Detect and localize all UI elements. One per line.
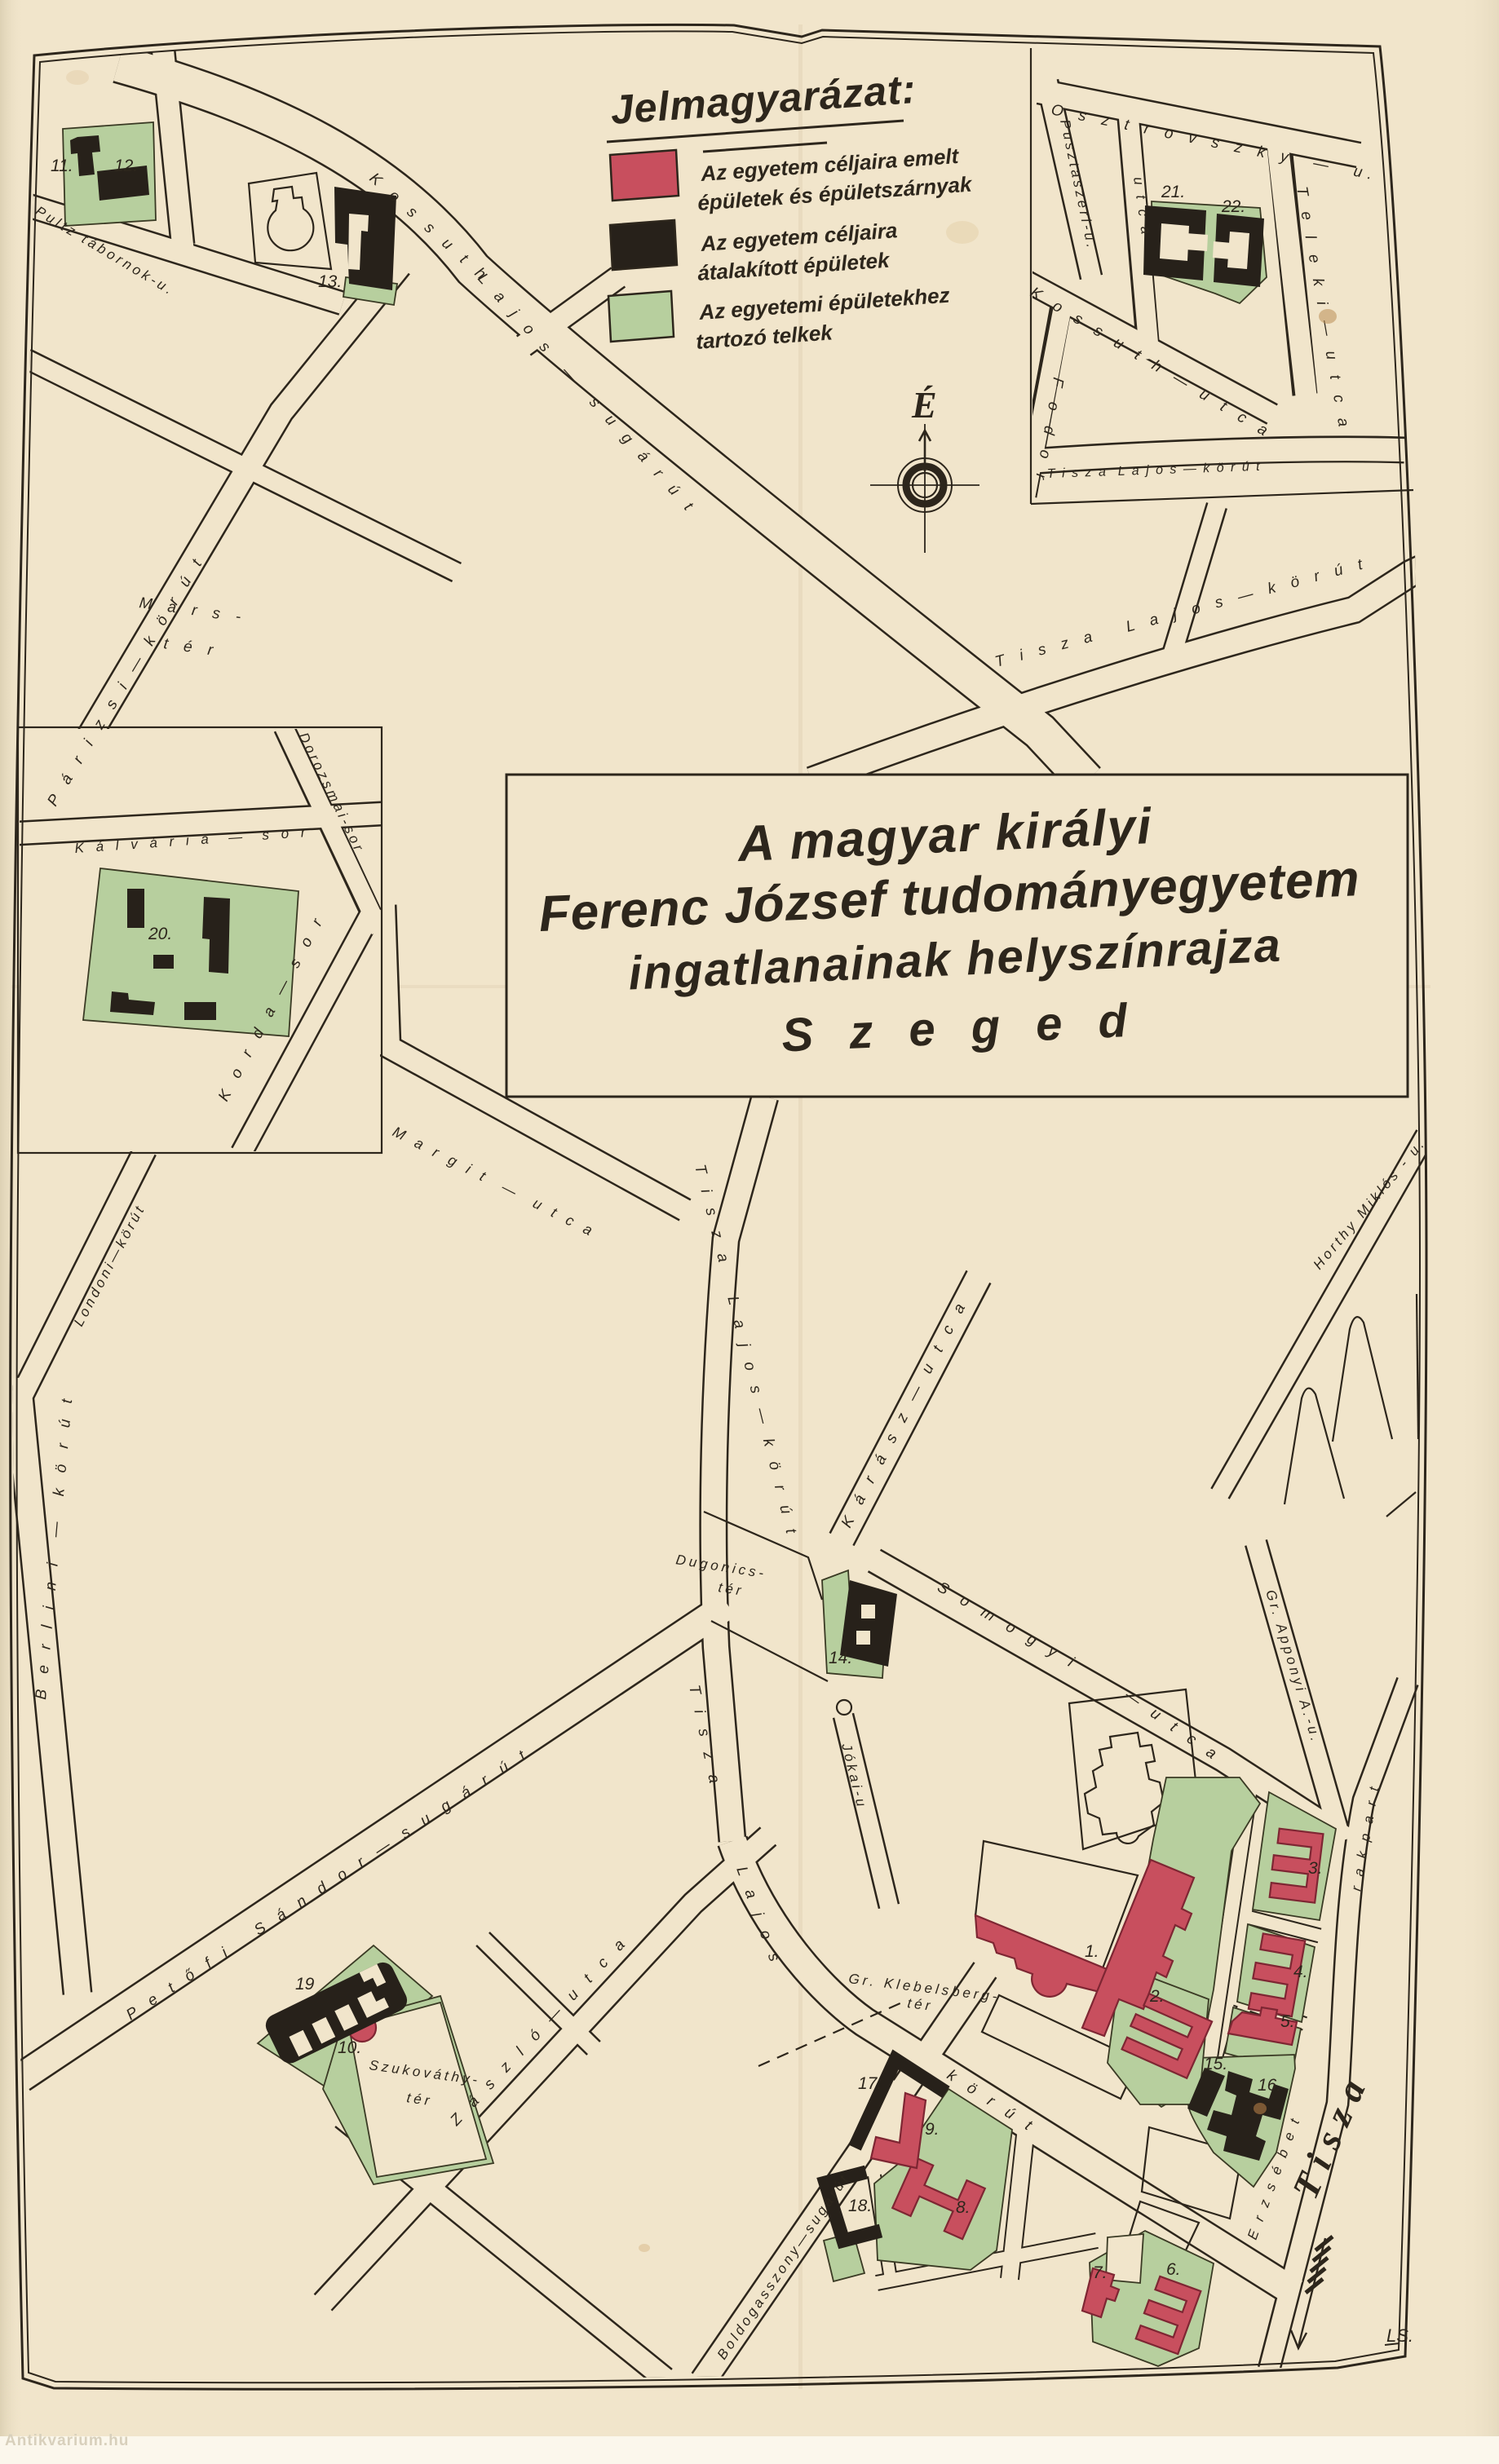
- svg-text:tér: tér: [907, 1995, 935, 2014]
- svg-text:22.: 22.: [1221, 197, 1245, 216]
- svg-text:5.: 5.: [1280, 2012, 1295, 2031]
- svg-text:21.: 21.: [1161, 183, 1185, 201]
- svg-text:16.: 16.: [1258, 2076, 1281, 2095]
- svg-text:3.: 3.: [1308, 1859, 1323, 1878]
- svg-text:20.: 20.: [148, 925, 172, 943]
- svg-text:18.: 18.: [848, 2197, 872, 2215]
- svg-text:15.: 15.: [1204, 2055, 1227, 2073]
- svg-text:12.: 12.: [114, 157, 138, 175]
- svg-text:10.: 10.: [338, 2038, 361, 2057]
- svg-text:8.: 8.: [956, 2198, 971, 2217]
- svg-text:19: 19: [295, 1975, 315, 1994]
- svg-text:14.: 14.: [829, 1649, 852, 1667]
- svg-text:9.: 9.: [925, 2120, 940, 2139]
- svg-text:17.: 17.: [858, 2074, 882, 2093]
- svg-text:13.: 13.: [318, 272, 342, 291]
- svg-text:É: É: [911, 384, 937, 426]
- svg-text:1.: 1.: [1085, 1942, 1099, 1961]
- svg-text:Antikvarium.hu: Antikvarium.hu: [5, 2432, 129, 2449]
- svg-text:11.: 11.: [51, 157, 73, 175]
- svg-text:7.: 7.: [1093, 2263, 1108, 2282]
- svg-text:6.: 6.: [1166, 2260, 1181, 2279]
- svg-text:2.: 2.: [1149, 1987, 1165, 2006]
- svg-text:4.: 4.: [1293, 1963, 1308, 1981]
